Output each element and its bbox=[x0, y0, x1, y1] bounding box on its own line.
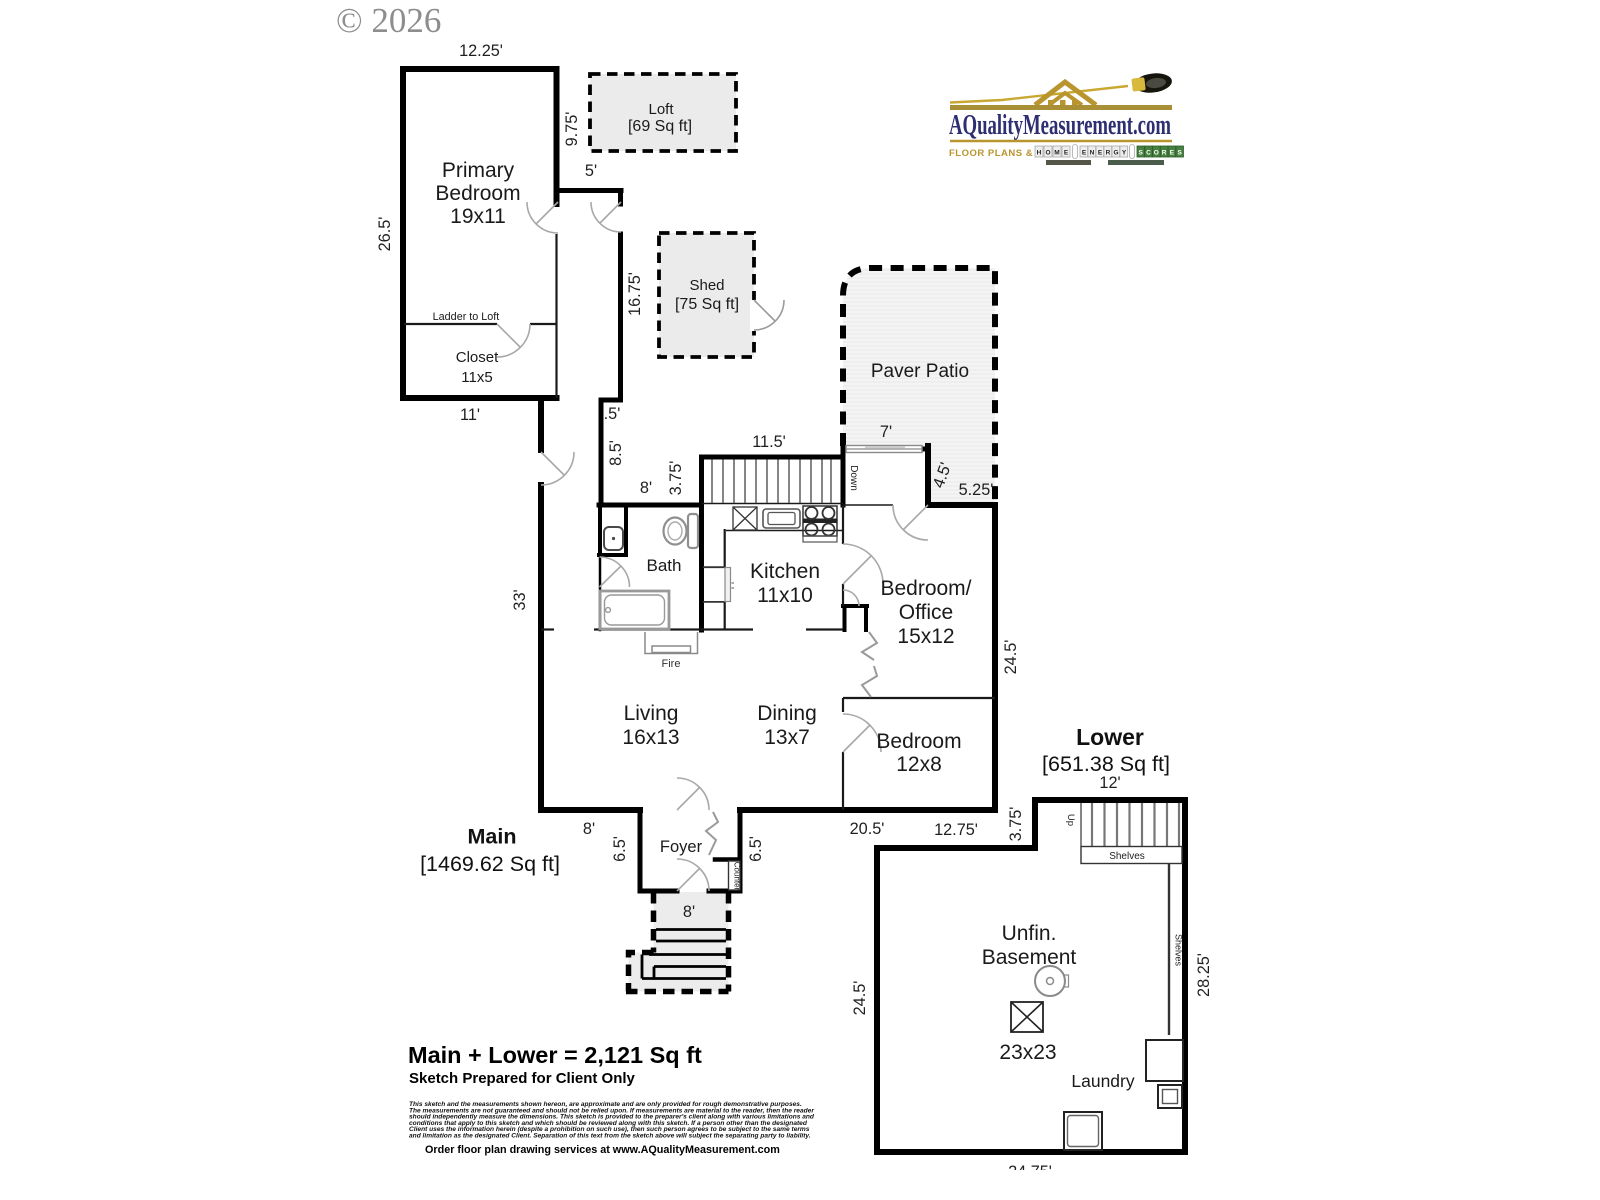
svg-text:13x7: 13x7 bbox=[764, 726, 810, 749]
svg-text:M: M bbox=[1054, 150, 1059, 157]
svg-text:Shelves: Shelves bbox=[1174, 934, 1184, 967]
svg-text:O: O bbox=[1045, 150, 1050, 157]
svg-text:Sketch Prepared for Client Onl: Sketch Prepared for Client Only bbox=[409, 1070, 636, 1087]
svg-text:19x11: 19x11 bbox=[450, 205, 506, 228]
svg-text:11.5': 11.5' bbox=[752, 433, 786, 451]
svg-text:Basement: Basement bbox=[982, 946, 1077, 969]
svg-text:Bath: Bath bbox=[647, 556, 682, 575]
svg-text:Order floor plan drawing servi: Order floor plan drawing services at www… bbox=[425, 1144, 780, 1156]
svg-text:Dining: Dining bbox=[757, 702, 817, 725]
svg-text:Fire: Fire bbox=[662, 658, 681, 670]
svg-text:Bedroom: Bedroom bbox=[876, 730, 961, 753]
svg-text:11x10: 11x10 bbox=[757, 584, 813, 607]
svg-text:16.75': 16.75' bbox=[626, 272, 644, 316]
svg-text:26.5': 26.5' bbox=[376, 217, 394, 252]
svg-text:N: N bbox=[1090, 150, 1095, 157]
svg-text:11': 11' bbox=[460, 406, 480, 424]
svg-text:[651.38 Sq ft]: [651.38 Sq ft] bbox=[1042, 752, 1170, 776]
svg-text:[75 Sq ft]: [75 Sq ft] bbox=[675, 296, 739, 313]
svg-text:9.75': 9.75' bbox=[563, 112, 581, 147]
svg-text:Primary: Primary bbox=[442, 159, 515, 182]
svg-text:6.5': 6.5' bbox=[611, 836, 629, 862]
svg-text:E: E bbox=[1098, 150, 1103, 157]
svg-text:E: E bbox=[1170, 150, 1175, 157]
svg-text:Bedroom/: Bedroom/ bbox=[880, 577, 971, 600]
svg-text:G: G bbox=[1113, 150, 1118, 157]
svg-text:Shelves: Shelves bbox=[1109, 851, 1145, 862]
svg-text:16x13: 16x13 bbox=[622, 726, 679, 749]
svg-text:20.5': 20.5' bbox=[850, 820, 885, 838]
svg-text:Laundry: Laundry bbox=[1071, 1071, 1134, 1091]
svg-text:E: E bbox=[1064, 150, 1069, 157]
svg-text:E: E bbox=[1082, 150, 1087, 157]
svg-text:R: R bbox=[1162, 150, 1167, 157]
svg-text:Up: Up bbox=[1065, 814, 1076, 826]
svg-text:12x8: 12x8 bbox=[896, 753, 942, 776]
svg-text:[69 Sq ft]: [69 Sq ft] bbox=[628, 118, 692, 135]
svg-text:12': 12' bbox=[1099, 774, 1120, 792]
svg-text:3.75': 3.75' bbox=[1007, 807, 1025, 842]
svg-text:Kitchen: Kitchen bbox=[750, 560, 820, 583]
svg-text:O: O bbox=[1154, 150, 1159, 157]
svg-text:12.25': 12.25' bbox=[459, 42, 503, 60]
svg-text:Ladder to Loft: Ladder to Loft bbox=[433, 311, 500, 323]
svg-text:8.5': 8.5' bbox=[607, 440, 625, 466]
svg-text:15x12: 15x12 bbox=[897, 625, 954, 648]
svg-text:Paver Patio: Paver Patio bbox=[871, 361, 969, 382]
svg-text:28.25': 28.25' bbox=[1195, 953, 1213, 997]
svg-text:12.75': 12.75' bbox=[934, 821, 978, 839]
svg-text:Lower: Lower bbox=[1076, 724, 1144, 750]
svg-text:AQualityMeasurement.com: AQualityMeasurement.com bbox=[949, 110, 1171, 141]
svg-text:S: S bbox=[1178, 150, 1183, 157]
svg-text:Main + Lower = 2,121 Sq ft: Main + Lower = 2,121 Sq ft bbox=[408, 1042, 702, 1068]
svg-text:S: S bbox=[1139, 150, 1144, 157]
svg-text:5': 5' bbox=[585, 162, 597, 180]
svg-text:8': 8' bbox=[583, 820, 595, 838]
svg-text:6.5': 6.5' bbox=[747, 836, 765, 862]
svg-text:7': 7' bbox=[880, 423, 892, 441]
svg-text:8': 8' bbox=[640, 479, 652, 497]
svg-text:11x5: 11x5 bbox=[461, 369, 492, 386]
svg-text:24.5': 24.5' bbox=[1002, 640, 1020, 675]
svg-text:C: C bbox=[1146, 150, 1151, 157]
svg-text:Counter: Counter bbox=[733, 862, 742, 891]
svg-text:Shed: Shed bbox=[689, 277, 724, 294]
svg-text:Office: Office bbox=[899, 601, 953, 624]
svg-text:Foyer: Foyer bbox=[660, 838, 703, 856]
svg-text:[1469.62 Sq ft]: [1469.62 Sq ft] bbox=[420, 852, 560, 876]
svg-text:.5': .5' bbox=[604, 405, 621, 423]
svg-text:33': 33' bbox=[511, 589, 529, 610]
svg-text:Main: Main bbox=[468, 825, 517, 849]
svg-text:5.25': 5.25' bbox=[959, 481, 994, 499]
svg-text:R: R bbox=[1106, 150, 1111, 157]
svg-text:© 2026: © 2026 bbox=[336, 1, 441, 40]
svg-text:23x23: 23x23 bbox=[999, 1041, 1056, 1064]
svg-text:Y: Y bbox=[1122, 150, 1127, 157]
svg-text:Bedroom: Bedroom bbox=[435, 182, 520, 205]
svg-text:and limitation as the designat: and limitation as the designated Client.… bbox=[409, 1133, 811, 1140]
svg-text:Loft: Loft bbox=[648, 101, 674, 118]
svg-text:Down: Down bbox=[848, 465, 859, 491]
svg-text:Closet: Closet bbox=[456, 349, 499, 366]
svg-text:Unfin.: Unfin. bbox=[1002, 922, 1057, 945]
svg-text:Living: Living bbox=[624, 702, 679, 725]
svg-text:24.5': 24.5' bbox=[851, 981, 869, 1016]
svg-text:FLOOR PLANS &: FLOOR PLANS & bbox=[949, 148, 1033, 159]
svg-text:3.75': 3.75' bbox=[667, 461, 685, 496]
svg-text:8': 8' bbox=[683, 903, 695, 921]
svg-text:H: H bbox=[1037, 150, 1042, 157]
